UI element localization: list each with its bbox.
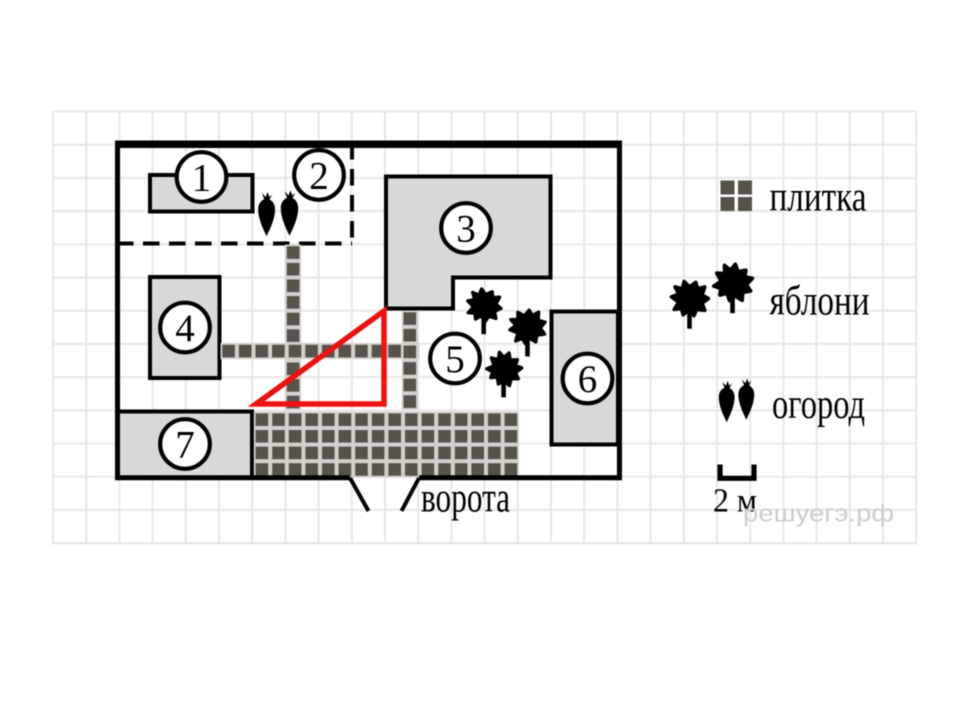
svg-text:3: 3 — [456, 208, 476, 251]
svg-text:решуегэ.рф: решуегэ.рф — [743, 501, 894, 528]
svg-text:ворота: ворота — [421, 476, 510, 522]
svg-text:5: 5 — [445, 338, 465, 381]
svg-text:4: 4 — [175, 307, 195, 350]
svg-text:огород: огород — [772, 382, 865, 428]
svg-text:1: 1 — [192, 157, 212, 200]
svg-text:2: 2 — [309, 155, 329, 198]
svg-text:7: 7 — [175, 424, 195, 467]
svg-text:плитка: плитка — [770, 175, 867, 221]
svg-text:6: 6 — [578, 358, 598, 401]
svg-text:яблони: яблони — [770, 279, 870, 325]
